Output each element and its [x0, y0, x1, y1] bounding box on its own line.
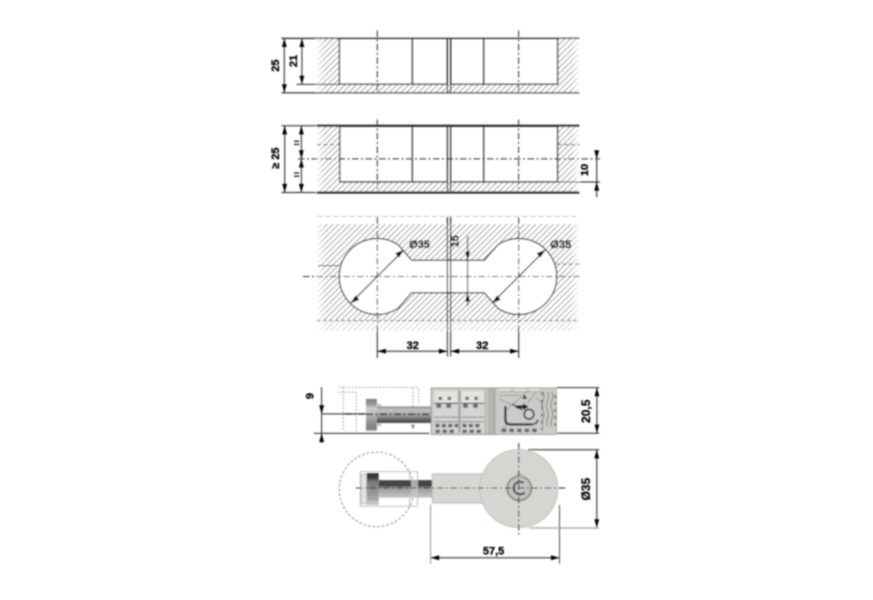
svg-text:9: 9 — [304, 393, 316, 399]
svg-text:32: 32 — [476, 340, 488, 352]
svg-text:15: 15 — [450, 235, 462, 247]
svg-text:Ø35: Ø35 — [550, 239, 571, 251]
svg-text:25: 25 — [270, 59, 282, 71]
svg-text:20,5: 20,5 — [579, 399, 593, 423]
svg-text:21: 21 — [288, 55, 300, 67]
svg-text:Ø35: Ø35 — [579, 478, 593, 501]
svg-text:10: 10 — [579, 164, 591, 176]
svg-text:Ø35: Ø35 — [409, 239, 430, 251]
svg-text:57,5: 57,5 — [483, 545, 504, 557]
svg-text:32: 32 — [407, 340, 419, 352]
svg-text:≥ 25: ≥ 25 — [270, 148, 282, 169]
